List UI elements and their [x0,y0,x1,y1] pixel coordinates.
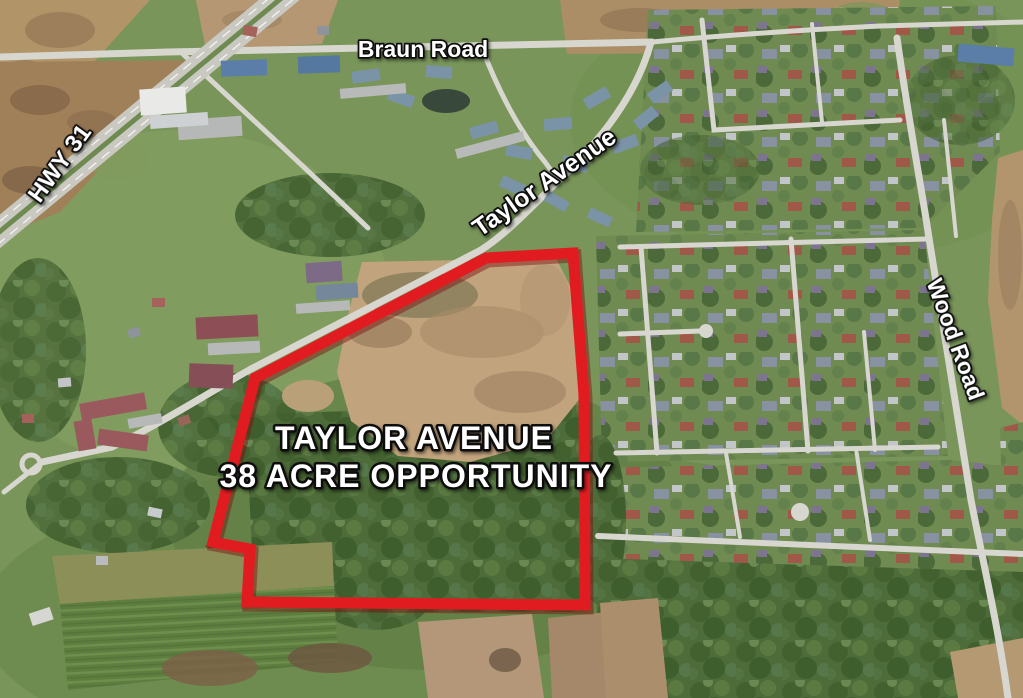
parcel-title-line1: TAYLOR AVENUE [275,420,553,456]
braun-road-label: Braun Road [358,36,488,62]
parcel-title-line2: 38 ACRE OPPORTUNITY [220,458,613,494]
aerial-map-image: Braun Road HWY 31 Taylor Avenue Wood Roa… [0,0,1023,698]
aerial-basemap: Braun Road HWY 31 Taylor Avenue Wood Roa… [0,0,1023,698]
pond [422,89,470,113]
